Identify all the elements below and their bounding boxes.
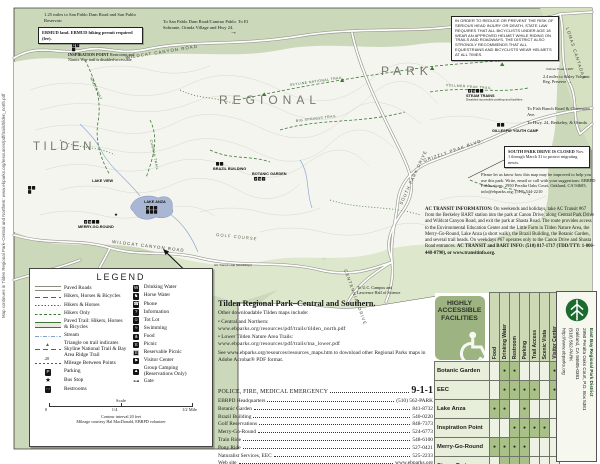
ebrpd-leaf-logo [562,295,592,325]
directory-row-brazil-building: Brazil Building540-0220 [218,413,433,421]
legend-box: LEGEND Paved Roads Hikers, Horses & Bicy… [29,268,213,447]
column-restroom: Restroom [510,293,520,362]
stream-symbol [35,336,61,337]
legend-title: LEGEND [35,272,207,282]
picnic-icon: π [133,342,140,349]
note-ac-transit: AC TRANSIT INFORMATION: On weekends and … [425,207,596,257]
mileage-value: .20 [44,356,49,361]
place-label-ac-transit-stop: AC Transit stop (weekdays) [214,263,252,267]
hwy24-text: To Hwy. 24, Berkeley, & Orinda [527,120,593,126]
district-city: Oakland, CA 94605-0381 [573,328,580,459]
table-row-inspiration-point: Inspiration Point ●●●● [435,419,560,438]
svg-text:W: W [89,220,92,224]
hikers-horses-symbol [35,305,61,306]
directory-row-naturalist: Naturalist Services, EEC525-2233 [218,452,433,460]
column-trail-access: Trail Access [530,293,540,362]
place-label-brazil-building: BRAZIL BUILDING [213,167,246,171]
legend-item-tot-lot: ☺Tot Lot [132,317,207,324]
downloads-intro: Other downloadable Tilden maps include: [218,310,431,317]
column-food: Food [490,293,500,362]
download-central-northern: • Central and Northern: www.ebparks.org/… [218,319,431,333]
scale-bar: Scale 0 1/4 1/2 Mile [35,398,207,412]
central-northern-url: www.ebparks.org/resources/pdf/trails/til… [218,326,346,332]
legend-item-group-camping: ▲Group Camping (Reservations Only) [132,366,207,378]
arrow-right-icon: → [163,30,263,34]
svg-text:P: P [255,177,257,181]
place-note-steam-trains: Disabled-accessible parking and faciliti… [466,98,523,102]
note-fish-ranch: To Fish Ranch Road & Claremont Ave. To H… [527,106,593,129]
accessible-facilities-title: HIGHLY ACCESSIBLE FACILITIES [438,300,482,322]
scale-tick-quarter: 1/4 [112,407,118,412]
legend-item-paved-roads: Paved Roads [35,285,128,292]
legend-item-drinking-water: WDrinking Water [132,285,207,292]
place-label-vollmer-peak: Vollmer Peak 1,905' [546,67,574,71]
table-row-steam-trains: Steam Trains ●●● [435,457,560,464]
column-drinking-water: Drinking Water [500,293,510,362]
gate-icon: ⊶ [133,379,139,385]
download-lower-tilden: • Lower Tilden Nature Area Trails: www.e… [218,334,431,348]
place-label-merry-go-round: MERRY-GO-ROUND [78,225,114,229]
table-row-eec: EEC ●●●●● [435,381,560,400]
legend-item-visitor-center: ⚑Visitor Center [132,358,207,365]
svg-text:P: P [469,89,471,93]
legend-item-swimming: ≈Swimming [132,325,207,332]
ac-transit-lead: AC TRANSIT INFORMATION: [425,207,492,212]
legend-item-picnic: πPicnic [132,342,207,349]
downloads-info: Tilden Regional Park–Central and Souther… [218,299,431,365]
restrooms-icon: ♀♂ [45,386,52,393]
ac-transit-body: On weekends and holidays, take AC Transi… [425,207,594,249]
place-label-lake-view: LAKE VIEW [92,179,114,183]
food-icon: ⋔ [133,334,140,341]
directory-row-emergency: POLICE, FIRE, MEDICAL EMERGENCY9-1-1 [218,384,433,398]
place-label-botanic-garden: BOTANIC GARDEN [252,172,287,176]
table-row-merry-go-round: Merry-Go-Round ●●●● [435,438,560,457]
table-row-lake-anza: Lake Anza ●●● [435,400,560,419]
visitor-center-icon: ⚑ [133,358,140,365]
directory-row-website: Web sitewww.ebparks.org [218,460,433,464]
swimming-icon: ≈ [133,325,140,332]
legend-item-horse-water: ♞Horse Water [132,293,207,300]
district-phone: (510) 562-PARK [566,328,573,459]
directory-row-botanic-garden: Botanic Garden841-8732 [218,405,433,413]
directory-row-pony-ride: Pony Ride527-0421 [218,444,433,452]
south-park-closed-title: SOUTH PARK DRIVE IS CLOSED [508,149,575,154]
svg-text:P: P [85,220,87,224]
place-label-lake-anza: LAKE ANZA [144,200,166,204]
legend-item-gate: ⊶Gate [132,379,207,385]
other-maps-note: See www.ebparks.org/resources/resources_… [218,350,431,364]
note-san-pablo-distance: 1.25 miles to San Pablo Dam Road and San… [44,12,139,23]
legend-item-food: ⋔Food [132,334,207,341]
svg-text:W: W [147,206,150,210]
legend-item-hikers-horses: Hikers & Horses [35,302,128,309]
bus-stop-icon: ★ [45,378,51,385]
legend-item-phone: ☎Phone [132,301,207,308]
note-map-feedback: Please let us know how this map may be i… [481,172,596,194]
park-map-page: P ? W P W P W ? [0,0,600,464]
svg-text:W: W [473,89,476,93]
note-ebmud-permit: EBMUD land. EBMUD hiking permit required… [38,27,143,44]
group-camping-icon: ▲ [133,369,140,376]
svg-text:W: W [259,177,262,181]
information-icon: ? [133,309,140,316]
park-name-park: PARK [381,64,433,78]
facility-icons-botanic-garden: P W ? [254,177,265,181]
legend-item-restrooms: ♀♂Restrooms [35,386,128,393]
scale-tick-0: 0 [45,407,47,412]
phone-directory: POLICE, FIRE, MEDICAL EMERGENCY9-1-1 EBR… [218,384,433,464]
horse-water-icon: ♞ [133,293,140,300]
note-sibley-distance: 2.4 miles to Sibley Volcanic Reg. Preser… [543,74,595,85]
directory-row-train-ride: Train Ride548-6100 [218,436,433,444]
fish-ranch-text: To Fish Ranch Road & Claremont Ave. [527,106,593,117]
accessible-facilities-table: HIGHLY ACCESSIBLE FACILITIES Food Drinki… [434,292,560,464]
district-name: East Bay Regional Park District [587,328,594,459]
note-helmet-law: In order to reduce or prevent the risk o… [451,16,559,61]
legend-item-reservable-picnic: πReservable Picnic [132,350,207,357]
district-address: East Bay Regional Park District 2950 Per… [559,328,594,459]
table-row-botanic-garden: Botanic Garden ●●● [435,362,560,381]
paved-trail-symbol [35,322,61,327]
paved-road-symbol [35,286,61,290]
legend-item-paved-trail: Paved Trail: Hikers, Horses & Bicycles [35,319,128,331]
mileage-credit: Mileage courtesy Hal MacDonald, EBRPD vo… [35,419,207,424]
legend-item-information: ?Information [132,309,207,316]
park-name-tilden: TILDEN [33,141,95,153]
phone-icon: ☎ [133,301,140,308]
note-to-san-pablo-line1: To San Pablo Dam Road/Camino Pablo. [163,19,237,24]
note-inspiration-point: INSPIRATION POINT Restrooms and Nimitz W… [68,52,138,62]
lower-tilden-url: www.ebparks.org/resources/pdf/trails/tna… [218,341,340,347]
legend-item-stream: Stream [35,333,128,340]
page-edge-caption: Map continues in Tilden Regional Park–Ce… [1,18,7,318]
trail-triangle-icon: ▲ [45,343,50,348]
map-title: Tilden Regional Park–Central and Souther… [218,299,431,308]
arrow-right-icon: → [567,79,571,84]
district-street: 2950 Peralta Oaks Court, P.O. Box 5381 [580,328,587,459]
legend-item-mileage: .20Mileage Between Points [35,360,128,367]
directory-row-golf: Golf Reservations848-7373 [218,421,433,429]
column-parking: Parking [520,293,530,362]
district-info-box: East Bay Regional Park District 2950 Per… [556,291,597,462]
hikers-only-symbol [35,314,61,315]
legend-item-bus-stop: ★Bus Stop [35,377,128,384]
drinking-water-icon: W [133,285,140,292]
note-to-san-pablo: To San Pablo Dam Road/Camino Pablo. To E… [163,19,263,34]
legend-item-parking: PParking [35,369,128,376]
tot-lot-icon: ☺ [133,317,140,324]
reservable-picnic-icon: π [133,350,140,357]
legend-item-hikers-horses-bicycles: Hikers, Horses & Bicycles [35,294,128,301]
wheelchair-icon [454,330,485,360]
scale-tick-half: 1/2 Mile [182,407,197,412]
multiuse-trail-symbol [35,297,61,298]
district-web: http://www.ebparks.org [560,328,567,459]
park-name-regional: REGIONAL [219,93,321,107]
column-scenic-vista: Scenic Vista [540,293,550,362]
accessible-facilities-header: HIGHLY ACCESSIBLE FACILITIES [435,296,485,360]
directory-row-merry-go-round: Merry-Go-Round524-6773 [218,429,433,437]
directory-row-headquarters: EBRPD Headquarters(510) 562-PARK [218,398,433,406]
parking-icon: P [45,369,52,376]
place-label-gillespie: GILLESPIE YOUTH CAMP [492,129,539,133]
note-south-park-closed: SOUTH PARK DRIVE IS CLOSED Nov. 1 throug… [504,146,590,168]
note-uc-campus: To U.C. Campus and Lawrence Hall of Scie… [357,285,407,296]
legend-item-hikers-only: Hikers Only [35,311,128,318]
